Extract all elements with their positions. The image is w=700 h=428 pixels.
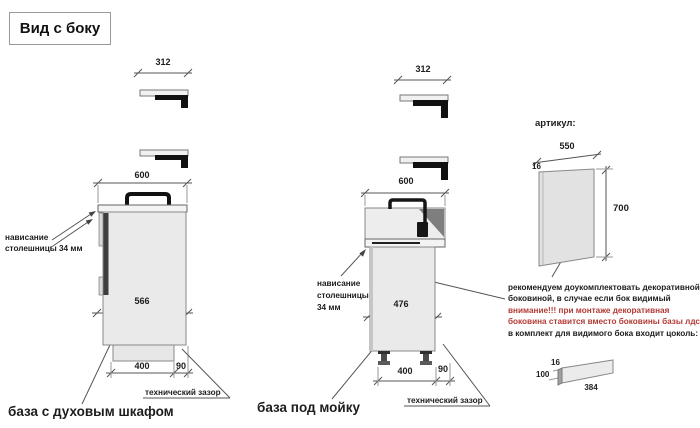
sink-dim-400: 400 <box>397 366 412 376</box>
sink-cabinet-edge <box>370 247 373 351</box>
sink-dim-476: 476 <box>393 299 408 309</box>
cabinet-leg-right <box>420 351 432 365</box>
sink-dim-90: 90 <box>438 364 448 374</box>
panel-warning-line2: боковина ставится вместо боковины базы л… <box>508 317 700 326</box>
plinth-dim-16: 16 <box>551 358 560 367</box>
side-panel-shapes <box>539 169 613 385</box>
oven-tech-gap-label: технический зазор <box>145 388 221 397</box>
oven-dim-566: 566 <box>134 296 149 306</box>
oven-door-top-edge <box>99 213 103 246</box>
plinth-dim-100: 100 <box>536 370 549 379</box>
side-view-drawing-sheet: Вид с боку 312 600 566 400 90 нависание … <box>0 0 700 428</box>
view-title-text: Вид с боку <box>20 20 101 37</box>
plinth-strip <box>562 360 613 383</box>
oven-dim-90: 90 <box>176 361 186 371</box>
oven-door-strip <box>104 213 109 295</box>
sink-overhang-note-line1: нависание <box>317 279 360 288</box>
oven-countertop-profile-upper-edge <box>155 95 188 108</box>
view-title: Вид с боку <box>9 12 111 45</box>
sink-tech-gap-label: технический зазор <box>407 396 483 405</box>
drawing-linework <box>0 0 700 428</box>
sink-overhang-note-line3: 34 мм <box>317 303 341 312</box>
article-heading: артикул: <box>535 119 576 130</box>
faucet-sprayer <box>417 222 428 237</box>
oven-base-shapes <box>98 90 188 361</box>
oven-base-name: база с духовым шкафом <box>8 404 174 420</box>
panel-note-line1: рекомендуем доукомплектовать декоративно… <box>508 283 700 292</box>
sink-base-name: база под мойку <box>257 400 360 416</box>
oven-handle <box>127 194 169 205</box>
sink-dim-312: 312 <box>415 64 430 74</box>
oven-cabinet-body <box>103 212 186 345</box>
oven-dim-400: 400 <box>134 361 149 371</box>
oven-base-arrowheads <box>86 211 96 225</box>
oven-overhang-note-line1: нависание <box>5 233 48 242</box>
cabinet-leg-left <box>378 351 390 365</box>
decorative-side-panel <box>539 169 594 266</box>
panel-dim-700: 700 <box>613 204 629 215</box>
sink-countertop-profile-lower-edge <box>413 162 448 180</box>
plinth-dim-384: 384 <box>584 383 597 392</box>
oven-overhang-note-line2: столешницы 34 мм <box>5 244 83 253</box>
oven-countertop-profile-lower-edge <box>155 155 188 168</box>
oven-dim-600: 600 <box>134 170 149 180</box>
oven-dim-312: 312 <box>155 57 170 67</box>
oven-door-bottom-edge <box>99 277 103 295</box>
sink-dim-600: 600 <box>398 176 413 186</box>
oven-countertop <box>98 205 187 212</box>
panel-note-line2: боковиной, в случае если бок видимый <box>508 294 671 303</box>
sink-overhang-note-line2: столешницы <box>317 291 369 300</box>
panel-dim-550: 550 <box>559 141 574 151</box>
plinth-strip-end <box>558 368 562 385</box>
panel-warning-line1: внимание!!! при монтаже декоративная <box>508 306 669 315</box>
panel-dim-16: 16 <box>532 162 541 171</box>
panel-note-line3: в комплект для видимого бока входит цоко… <box>508 329 698 338</box>
sink-countertop-profile-upper-edge <box>413 100 448 118</box>
oven-plinth <box>113 345 174 361</box>
sink-base-shapes <box>365 95 448 365</box>
